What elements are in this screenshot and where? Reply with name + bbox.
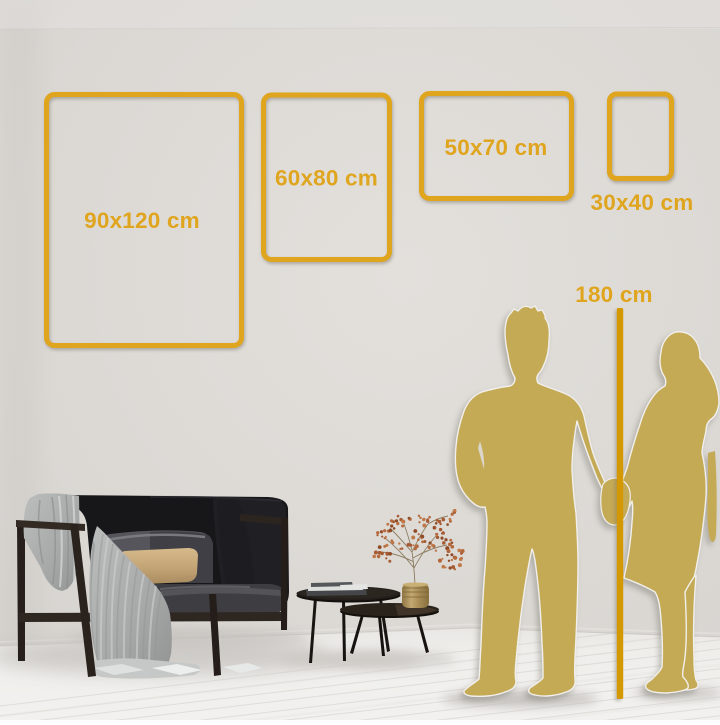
svg-text:90x120 cm: 90x120 cm <box>84 208 200 233</box>
svg-text:60x80 cm: 60x80 cm <box>275 166 378 191</box>
svg-text:50x70 cm: 50x70 cm <box>445 135 548 160</box>
svg-text:180 cm: 180 cm <box>575 282 653 307</box>
svg-text:30x40 cm: 30x40 cm <box>591 190 694 215</box>
